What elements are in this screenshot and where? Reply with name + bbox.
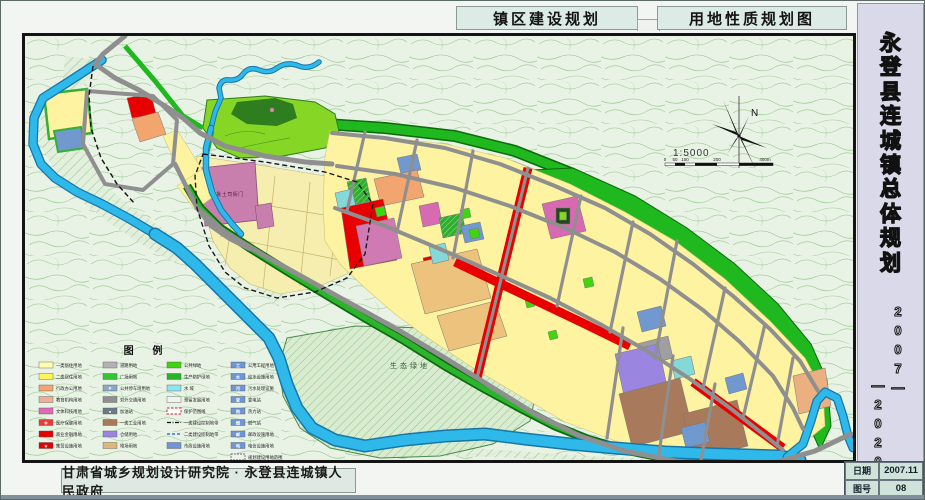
svg-text:★: ★	[43, 443, 48, 448]
date-label: 日期	[845, 462, 879, 480]
svg-text:加油站: 加油站	[120, 408, 134, 415]
svg-text:400m: 400m	[759, 157, 771, 162]
svg-text:教育机构用地: 教育机构用地	[56, 397, 82, 404]
plan-name-char: 规	[858, 227, 923, 251]
legend-item: P公共停车场用地	[103, 385, 151, 392]
legend-item: 生产防护绿地	[167, 374, 210, 381]
svg-text:保护范围线: 保护范围线	[184, 408, 206, 415]
legend-item: 堆场用地	[103, 443, 138, 450]
svg-text:燃气站: 燃气站	[248, 420, 262, 427]
plan-name-char: 划	[858, 252, 923, 276]
legend-item: 水 域	[167, 385, 194, 391]
svg-text:污水处理设施: 污水处理设施	[248, 385, 274, 392]
planning-map: 鲁土司衙门	[25, 36, 853, 460]
legend-item: 预留发展用地	[167, 397, 210, 404]
plan-name-char: 县	[858, 81, 923, 105]
svg-text:热力站: 热力站	[248, 408, 262, 415]
svg-text:广场用地: 广场用地	[120, 374, 138, 381]
svg-text:一类建设控制地带: 一类建设控制地带	[184, 420, 219, 427]
svg-text:水 域: 水 域	[184, 385, 194, 391]
titleblock-table: 日期 2007.11 图号 08	[844, 461, 924, 498]
legend-item: 规划建设用地范围	[231, 454, 282, 460]
legend-item: 工公用工程用地	[231, 362, 274, 369]
plan-sheet: 镇区建设规划 用地性质规划图	[0, 0, 925, 500]
svg-text:市政设施用地: 市政设施用地	[184, 443, 210, 450]
svg-text:规划建设用地范围: 规划建设用地范围	[248, 454, 282, 460]
svg-text:100: 100	[681, 157, 689, 162]
svg-text:公共停车场用地: 公共停车场用地	[120, 385, 151, 392]
plan-name-char: 登	[858, 56, 923, 80]
date-value: 2007.11	[879, 462, 923, 480]
legend-item: 邮邮政设施用地	[231, 431, 274, 438]
svg-text:一类工业用地: 一类工业用地	[120, 420, 146, 427]
legend-item: 二类居住用地	[39, 374, 82, 381]
svg-text:生产防护绿地: 生产防护绿地	[184, 374, 210, 381]
legend-item: 一类居住用地	[39, 362, 82, 369]
svg-text:变电站: 变电站	[248, 397, 262, 404]
legend-item: 文体科技用地	[39, 408, 82, 415]
legend-item: 一类工业用地	[103, 420, 146, 427]
plan-name-char: 永	[858, 32, 923, 56]
svg-text:✚: ✚	[44, 420, 48, 425]
legend-item: 广场用地	[103, 374, 138, 381]
svg-text:堆场用地: 堆场用地	[120, 443, 138, 450]
svg-text:P: P	[109, 386, 112, 391]
map-frame: 鲁土司衙门	[22, 33, 856, 463]
svg-text:电信设施用地: 电信设施用地	[248, 443, 274, 450]
scale-text: 1:5000	[673, 148, 710, 159]
legend-item: ✚医疗保健用地	[39, 420, 82, 427]
svg-text:邮政设施用地: 邮政设施用地	[248, 431, 274, 438]
svg-text:公共绿地: 公共绿地	[184, 362, 202, 369]
svg-text:医疗保健用地: 医疗保健用地	[56, 420, 82, 427]
plan-name-char: 总	[858, 178, 923, 202]
legend-item: 仓储用地	[103, 431, 138, 438]
plan-name-vertical: 永登县连城镇总体规划	[858, 4, 923, 276]
svg-text:预留发展用地: 预留发展用地	[184, 397, 210, 404]
legend-item: 市政设施用地	[167, 443, 210, 450]
svg-text:一类居住用地: 一类居住用地	[56, 362, 82, 369]
plan-name-char: 镇	[858, 154, 923, 178]
legend-item: ★集贸设施用地	[39, 443, 82, 450]
legend-title: 图 例	[124, 344, 171, 357]
legend-item: 教育机构用地	[39, 397, 82, 404]
legend-item: 电电信设施用地	[231, 442, 274, 449]
legend-item: 公共绿地	[167, 362, 202, 369]
plan-name-char: 体	[858, 203, 923, 227]
svg-text:50: 50	[672, 157, 678, 162]
plan-title-left: 镇区建设规划	[456, 6, 638, 30]
legend-item: 水给水设施用地	[231, 373, 274, 380]
svg-text:仓储用地: 仓储用地	[120, 431, 138, 438]
plan-name-char: 城	[858, 130, 923, 154]
svg-text:对外交通用地: 对外交通用地	[120, 397, 146, 404]
plan-name-char: 连	[858, 105, 923, 129]
svg-text:商业金融用地: 商业金融用地	[56, 431, 82, 438]
sheet-title-sidebar: 永登县连城镇总体规划 2007— —2020	[857, 3, 924, 462]
legend-item: 保护范围线	[167, 408, 206, 415]
plan-title-right: 用地性质规划图	[657, 6, 847, 30]
legend-item: 行政办公用地	[39, 385, 82, 392]
credit-bar: 甘肃省城乡规划设计研究院 · 永登县连城镇人民政府	[61, 468, 356, 493]
legend-item: 对外交通用地	[103, 397, 146, 404]
svg-text:二类居住用地: 二类居住用地	[56, 374, 82, 381]
svg-text:道路用地: 道路用地	[120, 362, 138, 369]
bottom-band	[1, 495, 925, 500]
plan-years-left: —2020	[870, 376, 886, 471]
svg-text:文体科技用地: 文体科技用地	[56, 408, 82, 415]
legend-item: 道路用地	[103, 362, 138, 369]
plan-years-right: 2007—	[890, 302, 906, 397]
north-label: N	[751, 108, 758, 119]
legend-item: 污污水处理设施	[231, 385, 274, 392]
svg-text:行政办公用地: 行政办公用地	[56, 385, 82, 392]
svg-text:二类建设控制地带: 二类建设控制地带	[184, 431, 219, 438]
svg-text:公用工程用地: 公用工程用地	[248, 362, 274, 369]
svg-text:给水设施用地: 给水设施用地	[248, 374, 274, 381]
eco-area-label: 生态绿地	[390, 361, 430, 370]
legend-item: 商业金融用地	[39, 431, 82, 438]
svg-text:200: 200	[713, 157, 721, 162]
svg-text:集贸设施用地: 集贸设施用地	[56, 443, 82, 450]
heritage-site-label: 鲁土司衙门	[216, 191, 244, 198]
